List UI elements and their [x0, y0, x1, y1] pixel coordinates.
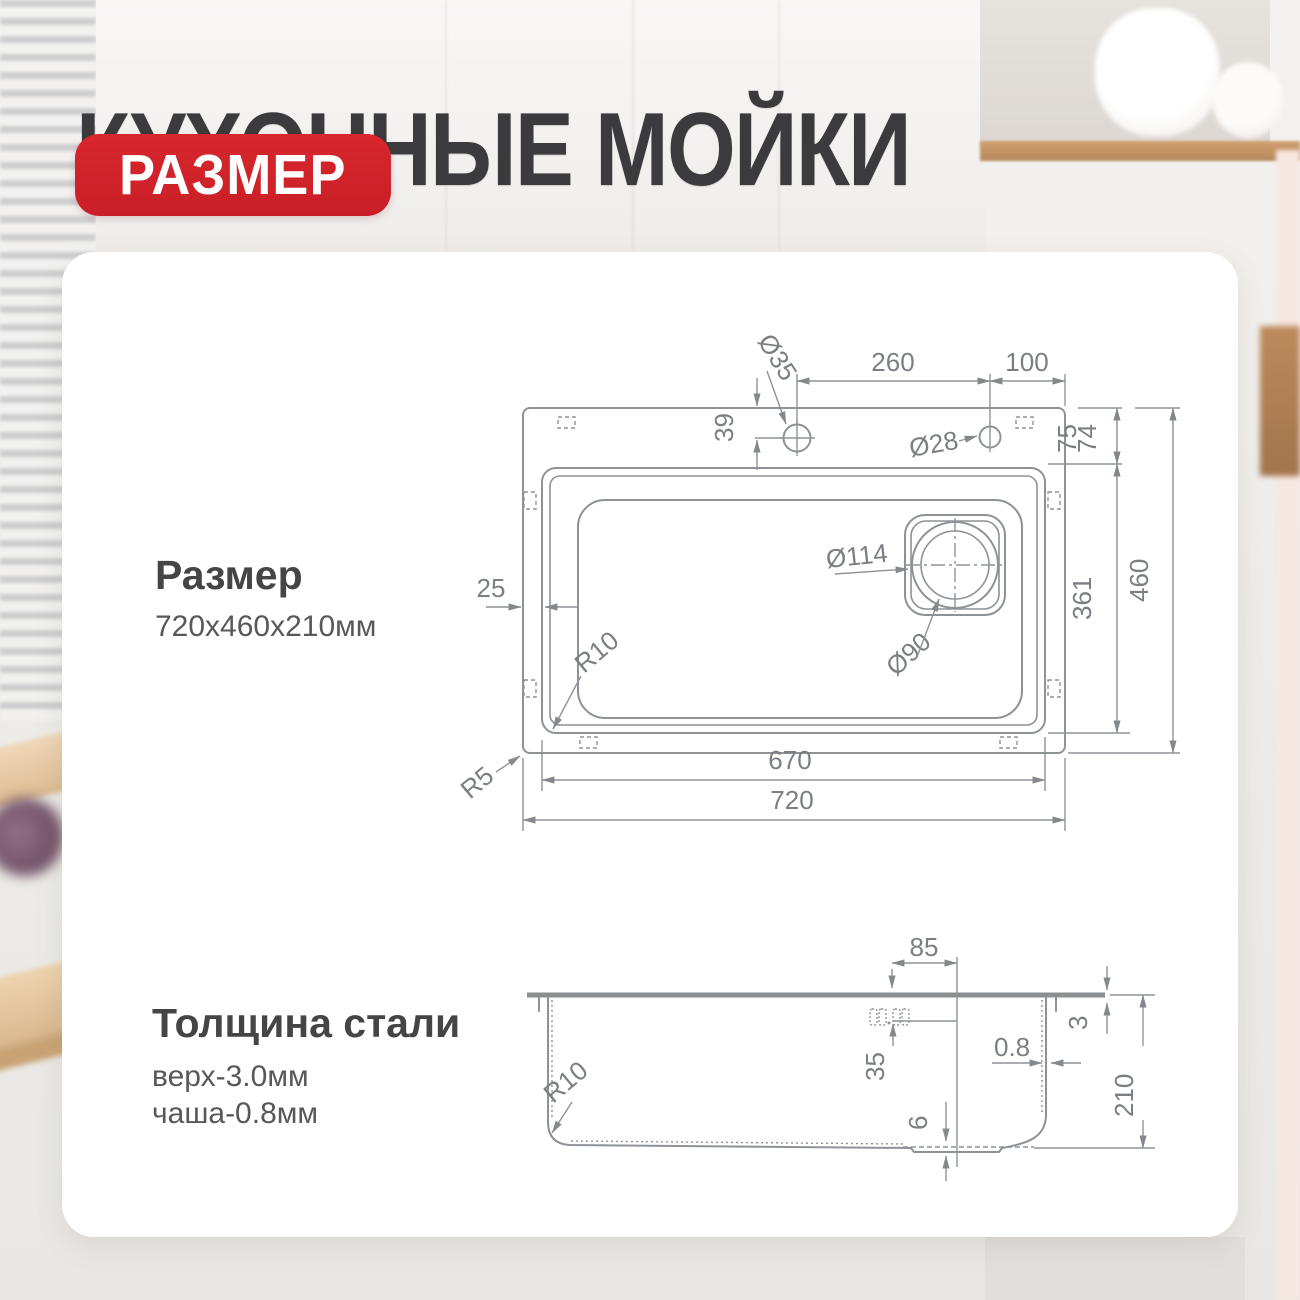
floor-shadow	[985, 1237, 1245, 1300]
infographic-page: КУХОННЫЕ МОЙКИ РАЗМЕР Размер 720x460x210…	[0, 0, 1300, 1300]
size-value: 720x460x210мм	[155, 610, 376, 644]
size-heading: Размер	[155, 552, 303, 599]
size-badge: РАЗМЕР	[75, 134, 391, 216]
white-bowls	[1095, 8, 1220, 136]
steel-top-value: верх-3.0мм	[152, 1060, 309, 1094]
right-wall	[1276, 150, 1300, 1300]
wood-shelf-edge	[980, 141, 1300, 161]
steel-bowl-value: чаша-0.8мм	[152, 1097, 318, 1131]
wood-panel	[1260, 326, 1300, 476]
fruit-blob	[0, 798, 64, 876]
steel-heading: Толщина стали	[152, 1000, 460, 1047]
size-badge-label: РАЗМЕР	[119, 142, 346, 208]
white-bowl	[1212, 62, 1284, 138]
